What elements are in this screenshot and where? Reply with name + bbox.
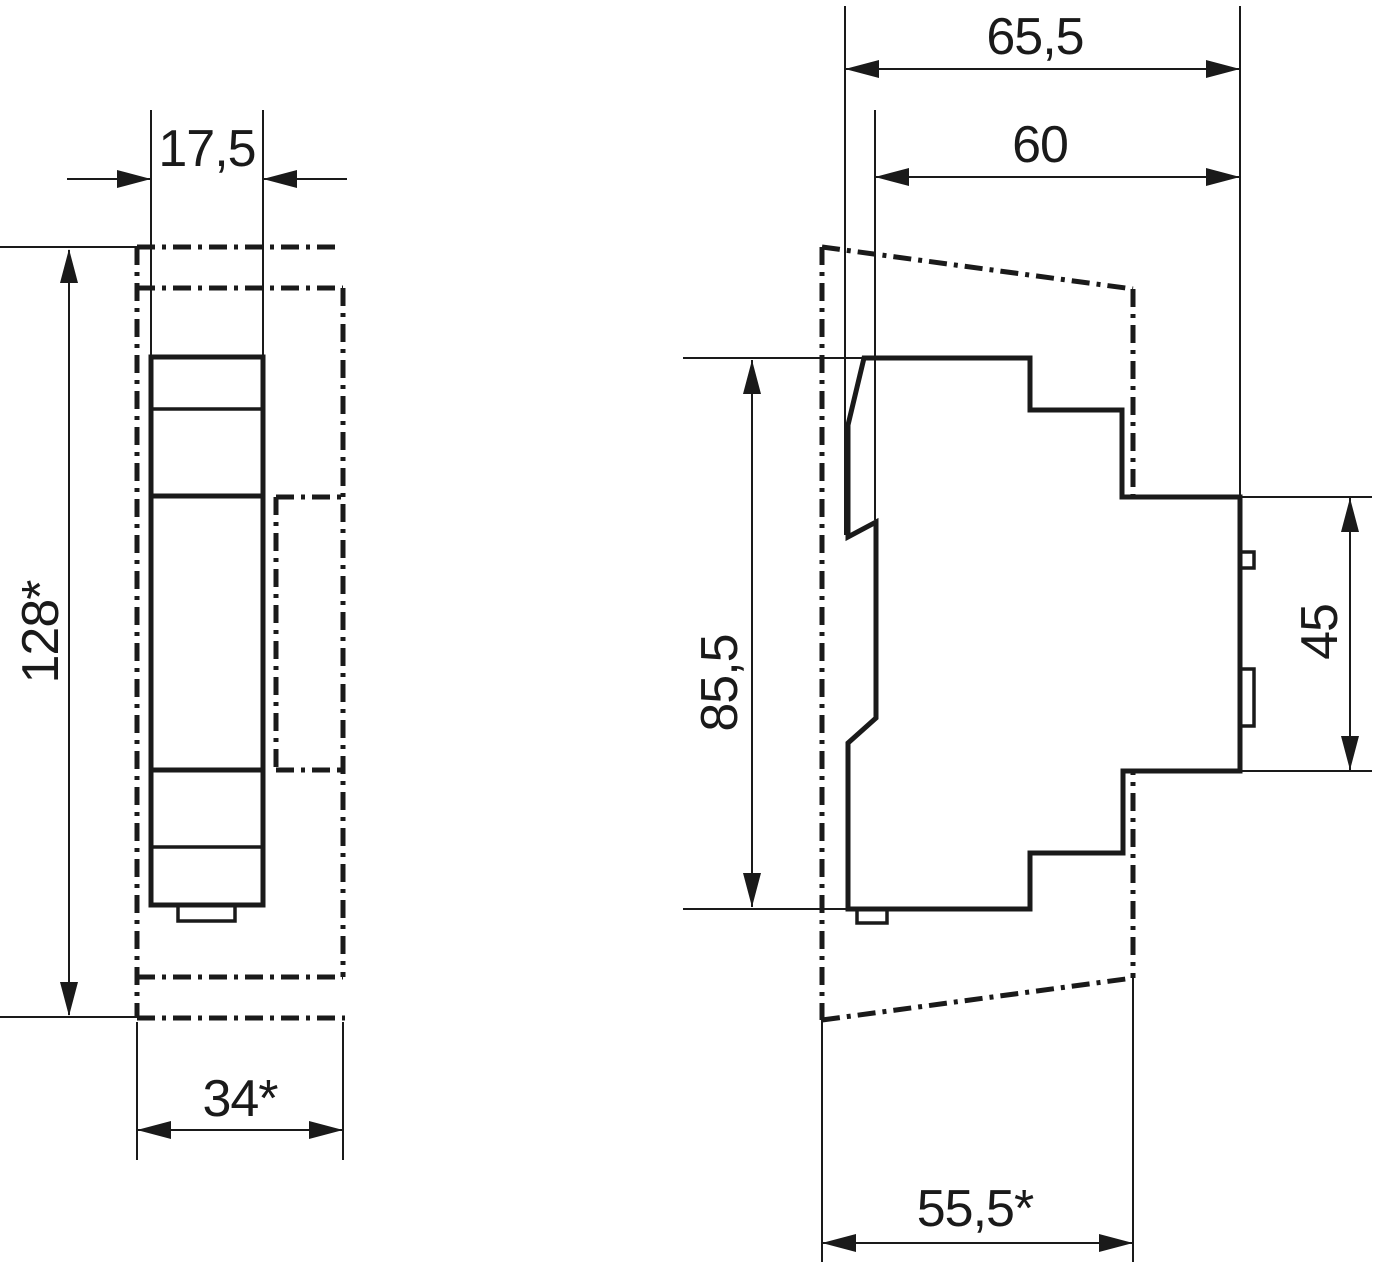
dim-label-side-rear-height: 45 (1291, 604, 1349, 660)
arrowhead-right-icon (117, 170, 151, 188)
arrowhead-right-icon (309, 1121, 343, 1139)
dim-label-side-height: 85,5 (691, 634, 749, 731)
dim-label-side-panel-depth: 55,5* (917, 1180, 1034, 1238)
arrowhead-down-icon (1341, 736, 1359, 770)
arrowhead-right-icon (1206, 168, 1240, 186)
panel-contour-bottom (822, 978, 1133, 1020)
arrowhead-right-icon (1099, 1234, 1133, 1252)
arrowhead-down-icon (60, 982, 78, 1016)
dim-label-front-cutout-width: 34* (202, 1070, 278, 1128)
arrowhead-left-icon (822, 1234, 856, 1252)
dim-label-side-depth-body: 60 (1012, 116, 1068, 174)
front-view: 17,5 128* 34* (0, 110, 347, 1160)
arrowhead-down-icon (743, 873, 761, 907)
device-body-outline (151, 357, 263, 905)
device-profile-outline (848, 358, 1240, 909)
drawing-svg: 17,5 128* 34* (0, 0, 1378, 1268)
dimension-side-rear-height: 45 (1240, 497, 1372, 771)
front-device-body (151, 357, 263, 921)
dim-label-front-height: 128* (12, 580, 70, 684)
dimension-front-cutout-width: 34* (137, 1022, 343, 1160)
dimension-front-height: 128* (0, 247, 138, 1017)
dimensional-drawing: 17,5 128* 34* (0, 0, 1378, 1268)
arrowhead-left-icon (263, 170, 297, 188)
dim-label-side-depth-total: 65,5 (986, 8, 1083, 66)
arrowhead-left-icon (137, 1121, 171, 1139)
panel-contour-top (822, 247, 1133, 289)
arrowhead-up-icon (1341, 498, 1359, 532)
arrowhead-left-icon (875, 168, 909, 186)
arrowhead-left-icon (845, 60, 879, 78)
side-device-profile (848, 358, 1254, 923)
side-view: 65,5 60 85,5 45 (683, 6, 1372, 1262)
dim-label-front-width: 17,5 (158, 120, 255, 178)
arrowhead-up-icon (743, 360, 761, 394)
arrowhead-right-icon (1206, 60, 1240, 78)
dimension-side-height: 85,5 (683, 358, 864, 909)
front-panel-dashdot-outline (137, 247, 345, 1018)
dimension-front-width: 17,5 (67, 110, 347, 357)
arrowhead-up-icon (60, 249, 78, 283)
dimension-side-panel-depth: 55,5* (822, 978, 1133, 1262)
